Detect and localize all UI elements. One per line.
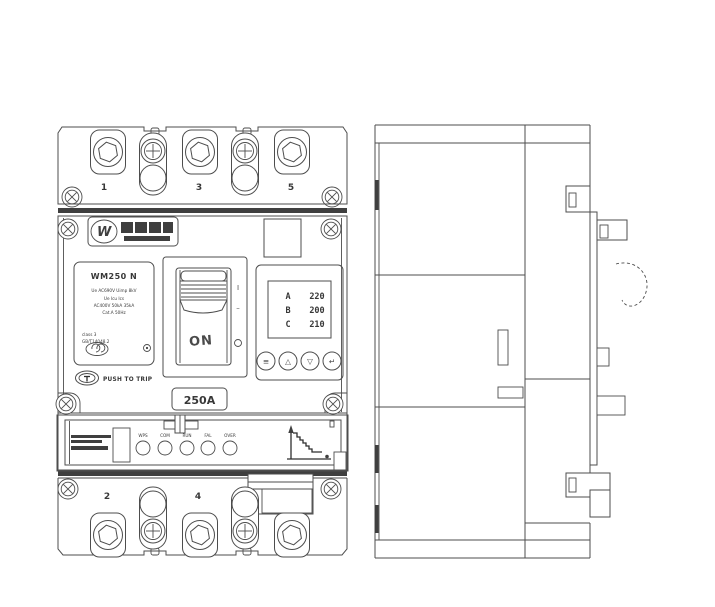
nameplate: WM250 N Ue AC690V Uimp 8kV Ue Icu Ics AC… bbox=[74, 262, 154, 365]
terminal-number-3: 3 bbox=[196, 183, 202, 193]
toggle-switch: ON I – bbox=[163, 257, 247, 377]
top-separator-band bbox=[58, 204, 347, 216]
enter-icon: ↵ bbox=[329, 357, 335, 366]
ccc-mark bbox=[86, 343, 108, 356]
phase-b-value: 200 bbox=[309, 306, 324, 316]
phase-b-label: B bbox=[285, 306, 290, 316]
spec-line: Cat.A 50Hz bbox=[102, 310, 126, 315]
upper-terminal-clamp bbox=[566, 186, 590, 212]
spec-line: Ue AC690V Uimp 8kV bbox=[91, 288, 136, 293]
mounting-slot bbox=[375, 180, 379, 210]
dashed-hook bbox=[616, 263, 647, 306]
mounting-slot bbox=[375, 505, 379, 533]
trip-curve-icon bbox=[287, 425, 331, 459]
spec-line: class 3 bbox=[82, 332, 97, 337]
side-slot bbox=[498, 330, 508, 365]
up-icon: △ bbox=[285, 357, 291, 366]
side-step bbox=[597, 348, 609, 366]
phase-c-value: 210 bbox=[309, 320, 324, 330]
brand-logo: W bbox=[88, 217, 178, 246]
led-fal bbox=[201, 441, 215, 455]
seal-fitting bbox=[164, 415, 198, 433]
strip-detail bbox=[330, 421, 334, 427]
hex-bolt-terminal bbox=[183, 130, 218, 174]
up-button: △ bbox=[279, 352, 297, 370]
down-button: ▽ bbox=[301, 352, 319, 370]
side-slot bbox=[498, 387, 523, 398]
strip-window bbox=[113, 428, 130, 462]
terminal-number-2: 2 bbox=[104, 492, 110, 502]
panel-screw bbox=[323, 394, 343, 414]
clamp-screw-terminal bbox=[140, 487, 167, 549]
enter-button: ↵ bbox=[323, 352, 341, 370]
mounting-slot bbox=[375, 445, 379, 473]
led-com bbox=[158, 441, 172, 455]
phase-a-label: A bbox=[285, 292, 290, 302]
rating-box: 250A bbox=[172, 388, 227, 410]
strip-hinge bbox=[334, 452, 346, 470]
phase-a-value: 220 bbox=[309, 292, 324, 302]
led-label-fal: FAL bbox=[204, 433, 212, 438]
display-module: A 220 B 200 C 210 ≡ △ ▽ ↵ bbox=[256, 265, 343, 380]
led-indicators: WPS COM RUN FAL OVER bbox=[136, 433, 237, 455]
panel-screw bbox=[56, 394, 76, 414]
menu-button: ≡ bbox=[257, 352, 275, 370]
push-to-trip-button: PUSH TO TRIP bbox=[76, 371, 153, 385]
strip-text-block bbox=[71, 435, 111, 450]
down-icon: ▽ bbox=[307, 357, 313, 366]
indicator-strip: WPS COM RUN FAL OVER bbox=[57, 415, 348, 471]
case-screw bbox=[58, 219, 78, 239]
side-view bbox=[375, 125, 647, 558]
logo-mark: W bbox=[97, 225, 112, 240]
switch-marker-off bbox=[235, 340, 242, 347]
led-label-run: RUN bbox=[182, 433, 191, 438]
side-step bbox=[597, 396, 625, 415]
hex-bolt-terminal bbox=[275, 513, 310, 557]
terminal-number-4: 4 bbox=[195, 492, 201, 502]
menu-icon: ≡ bbox=[263, 357, 269, 366]
push-to-trip-label: PUSH TO TRIP bbox=[103, 377, 153, 383]
switch-marker-on: I bbox=[237, 284, 239, 292]
lower-terminal-clamp bbox=[566, 473, 610, 517]
led-label-com: COM bbox=[160, 433, 170, 438]
upper-cable-clamp bbox=[597, 220, 627, 240]
phase-c-label: C bbox=[285, 320, 290, 330]
led-label-over: OVER bbox=[224, 433, 236, 438]
front-view: 1 3 5 W bbox=[56, 127, 348, 557]
drawing-canvas: 1 3 5 W bbox=[0, 0, 715, 607]
accessory-window bbox=[264, 219, 301, 257]
switch-state-label: ON bbox=[189, 333, 214, 350]
spec-line: Ue Icu Ics bbox=[104, 296, 124, 301]
led-run bbox=[180, 441, 194, 455]
clamp-screw-terminal bbox=[232, 487, 259, 549]
hex-bolt-terminal bbox=[91, 513, 126, 557]
led-over bbox=[223, 441, 237, 455]
terminal-number-5: 5 bbox=[288, 183, 294, 193]
case-screw bbox=[321, 219, 341, 239]
clamp-screw-terminal bbox=[140, 133, 167, 195]
model-number: WM250 N bbox=[91, 272, 137, 281]
cert-dot-center bbox=[146, 347, 148, 349]
led-label-wps: WPS bbox=[138, 433, 148, 438]
cover-screw bbox=[321, 479, 341, 499]
spec-line: AC400V 50kA 35kA bbox=[94, 303, 135, 308]
switch-marker-trip: – bbox=[236, 304, 240, 312]
hex-bolt-terminal bbox=[91, 130, 126, 174]
hex-bolt-terminal bbox=[183, 513, 218, 557]
led-wps bbox=[136, 441, 150, 455]
rating-label: 250A bbox=[184, 394, 216, 407]
terminal-barrier bbox=[590, 212, 597, 465]
switch-handle bbox=[180, 271, 227, 313]
spec-line: GB/T14048.2 bbox=[82, 339, 110, 344]
cover-screw bbox=[58, 479, 78, 499]
hex-bolt-terminal bbox=[275, 130, 310, 174]
breaker-drawing: 1 3 5 W bbox=[0, 0, 715, 607]
terminal-number-1: 1 bbox=[101, 183, 107, 193]
clamp-screw-terminal bbox=[232, 133, 259, 195]
